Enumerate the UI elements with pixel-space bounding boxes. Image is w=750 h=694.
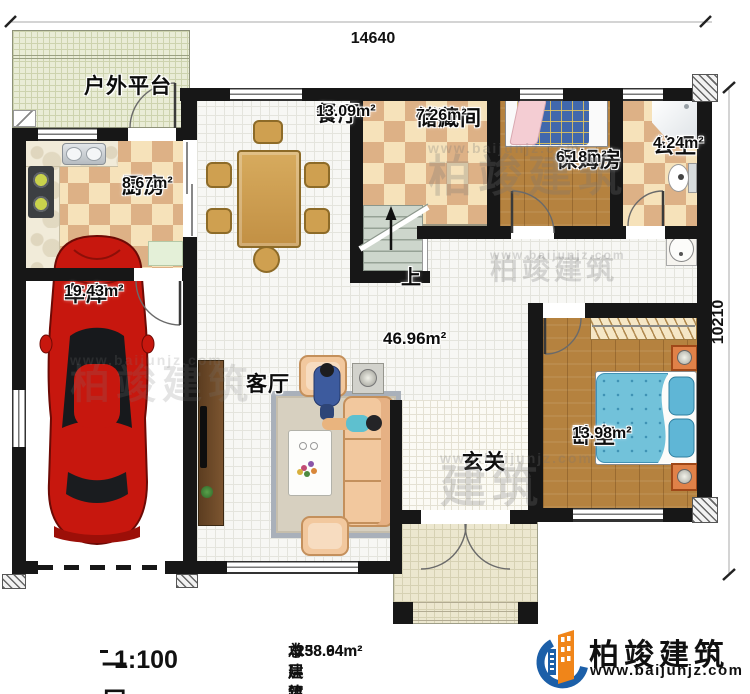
bed-quilt (596, 373, 668, 463)
window-kitchen (38, 128, 97, 141)
sofa-main (343, 396, 394, 527)
window-living (227, 561, 358, 574)
floor-plan-canvas: 14640 10210 户外平台 厨房8.67m² 餐厅13.09m² 储藏间7… (0, 0, 750, 694)
armchair-top-cushion (306, 362, 340, 390)
wall-garage-living (183, 268, 197, 574)
toilet-dot (678, 174, 684, 180)
dining-chair (206, 162, 232, 188)
wall-storage-nanny (487, 88, 500, 239)
platform-edge-line (12, 55, 190, 59)
nightstand-bottom (671, 463, 698, 491)
toilet-tank (688, 163, 697, 193)
brand-logo-icon (538, 627, 588, 689)
nightstand-top (671, 345, 698, 371)
armchair-bottom-cushion (308, 523, 342, 549)
wall-bottom-living-right (358, 561, 393, 574)
slider-panel (191, 184, 193, 236)
washbasin-dot (679, 252, 683, 256)
pier-bottom-left (2, 574, 26, 589)
plan-title: 一层平面图 1:100 (100, 646, 108, 653)
pier-bottom-right (692, 497, 718, 523)
dimension-width: 14640 (351, 30, 396, 48)
bath-door-opening (626, 226, 665, 239)
wall-bedroom-left (528, 303, 543, 510)
wall-foyer-left (390, 400, 402, 574)
plant-pot (201, 486, 213, 498)
porch-steps (394, 594, 537, 623)
coffee-table (288, 430, 332, 496)
dining-table (237, 150, 301, 248)
kitchen-sink-basin-right (86, 147, 102, 161)
window-bedroom (573, 508, 663, 522)
kitchen-dining-opening (183, 140, 197, 237)
shower-drain (684, 104, 689, 109)
window-bath (623, 88, 663, 101)
platform-step (13, 110, 36, 127)
plan-scale: 1:100 (114, 646, 178, 675)
porch-column-left (393, 602, 413, 624)
tv-screen (200, 406, 207, 468)
wall-left-outer (12, 128, 26, 574)
dining-chair (206, 208, 232, 234)
table-lamp (359, 369, 377, 387)
pier-garage-door (176, 574, 198, 588)
brand-website: www.baijunjz.com (590, 662, 743, 679)
garage-door (38, 561, 165, 574)
kitchen-sink-basin-left (66, 147, 82, 161)
dining-stool (253, 246, 280, 273)
pier-top-right (692, 74, 718, 102)
dining-chair (304, 208, 330, 234)
wall-bottom-left (12, 561, 38, 574)
window-garage (12, 390, 26, 447)
kitchen-garage-door-opening (134, 268, 182, 281)
nanny-door-opening (511, 226, 554, 239)
entry-door-opening (421, 510, 510, 524)
washbasin-bowl (669, 236, 694, 262)
outside-patch (537, 522, 712, 561)
wardrobe-rod (592, 325, 695, 327)
bedroom-door-opening (543, 303, 585, 318)
window-nanny (520, 88, 563, 101)
wall-hall-top (417, 226, 712, 239)
dining-chair (304, 162, 330, 188)
kitchen-stove (28, 166, 54, 218)
dining-chair (253, 120, 283, 144)
porch-column-right (518, 602, 538, 624)
dimension-height: 10210 (710, 300, 728, 345)
window-dining (230, 88, 302, 101)
platform-door-opening (128, 128, 176, 141)
slider-panel (186, 142, 188, 194)
staircase (363, 205, 423, 271)
